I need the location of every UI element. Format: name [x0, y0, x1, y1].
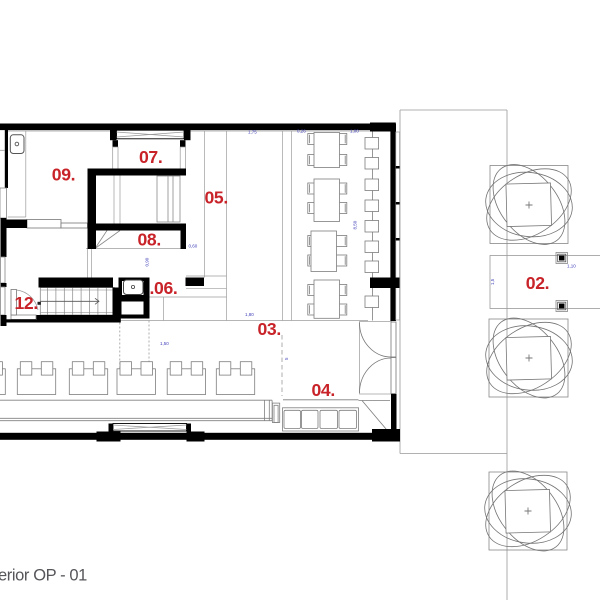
svg-text:12.: 12. — [15, 293, 38, 313]
svg-text:08.: 08. — [138, 230, 161, 250]
svg-text:8,50: 8,50 — [353, 220, 358, 229]
svg-text:erior OP - 01: erior OP - 01 — [0, 567, 87, 585]
svg-text:1,50: 1,50 — [160, 341, 169, 346]
svg-text:04.: 04. — [312, 380, 335, 400]
svg-text:0,90: 0,90 — [145, 257, 150, 266]
svg-text:05.: 05. — [205, 188, 228, 208]
svg-text:03.: 03. — [258, 319, 281, 339]
svg-text:1,75: 1,75 — [248, 130, 257, 135]
svg-text:0,26: 0,26 — [297, 129, 306, 134]
svg-text:1,5: 1,5 — [490, 278, 495, 285]
svg-text:09.: 09. — [52, 165, 75, 185]
svg-text:0,60: 0,60 — [189, 244, 198, 249]
svg-text:07.: 07. — [139, 147, 162, 167]
svg-text:02.: 02. — [526, 273, 549, 293]
svg-text:1,80: 1,80 — [245, 312, 254, 317]
svg-text:1,00: 1,00 — [350, 129, 359, 134]
svg-text:.06.: .06. — [150, 278, 178, 298]
svg-text:1,10: 1,10 — [567, 264, 576, 269]
